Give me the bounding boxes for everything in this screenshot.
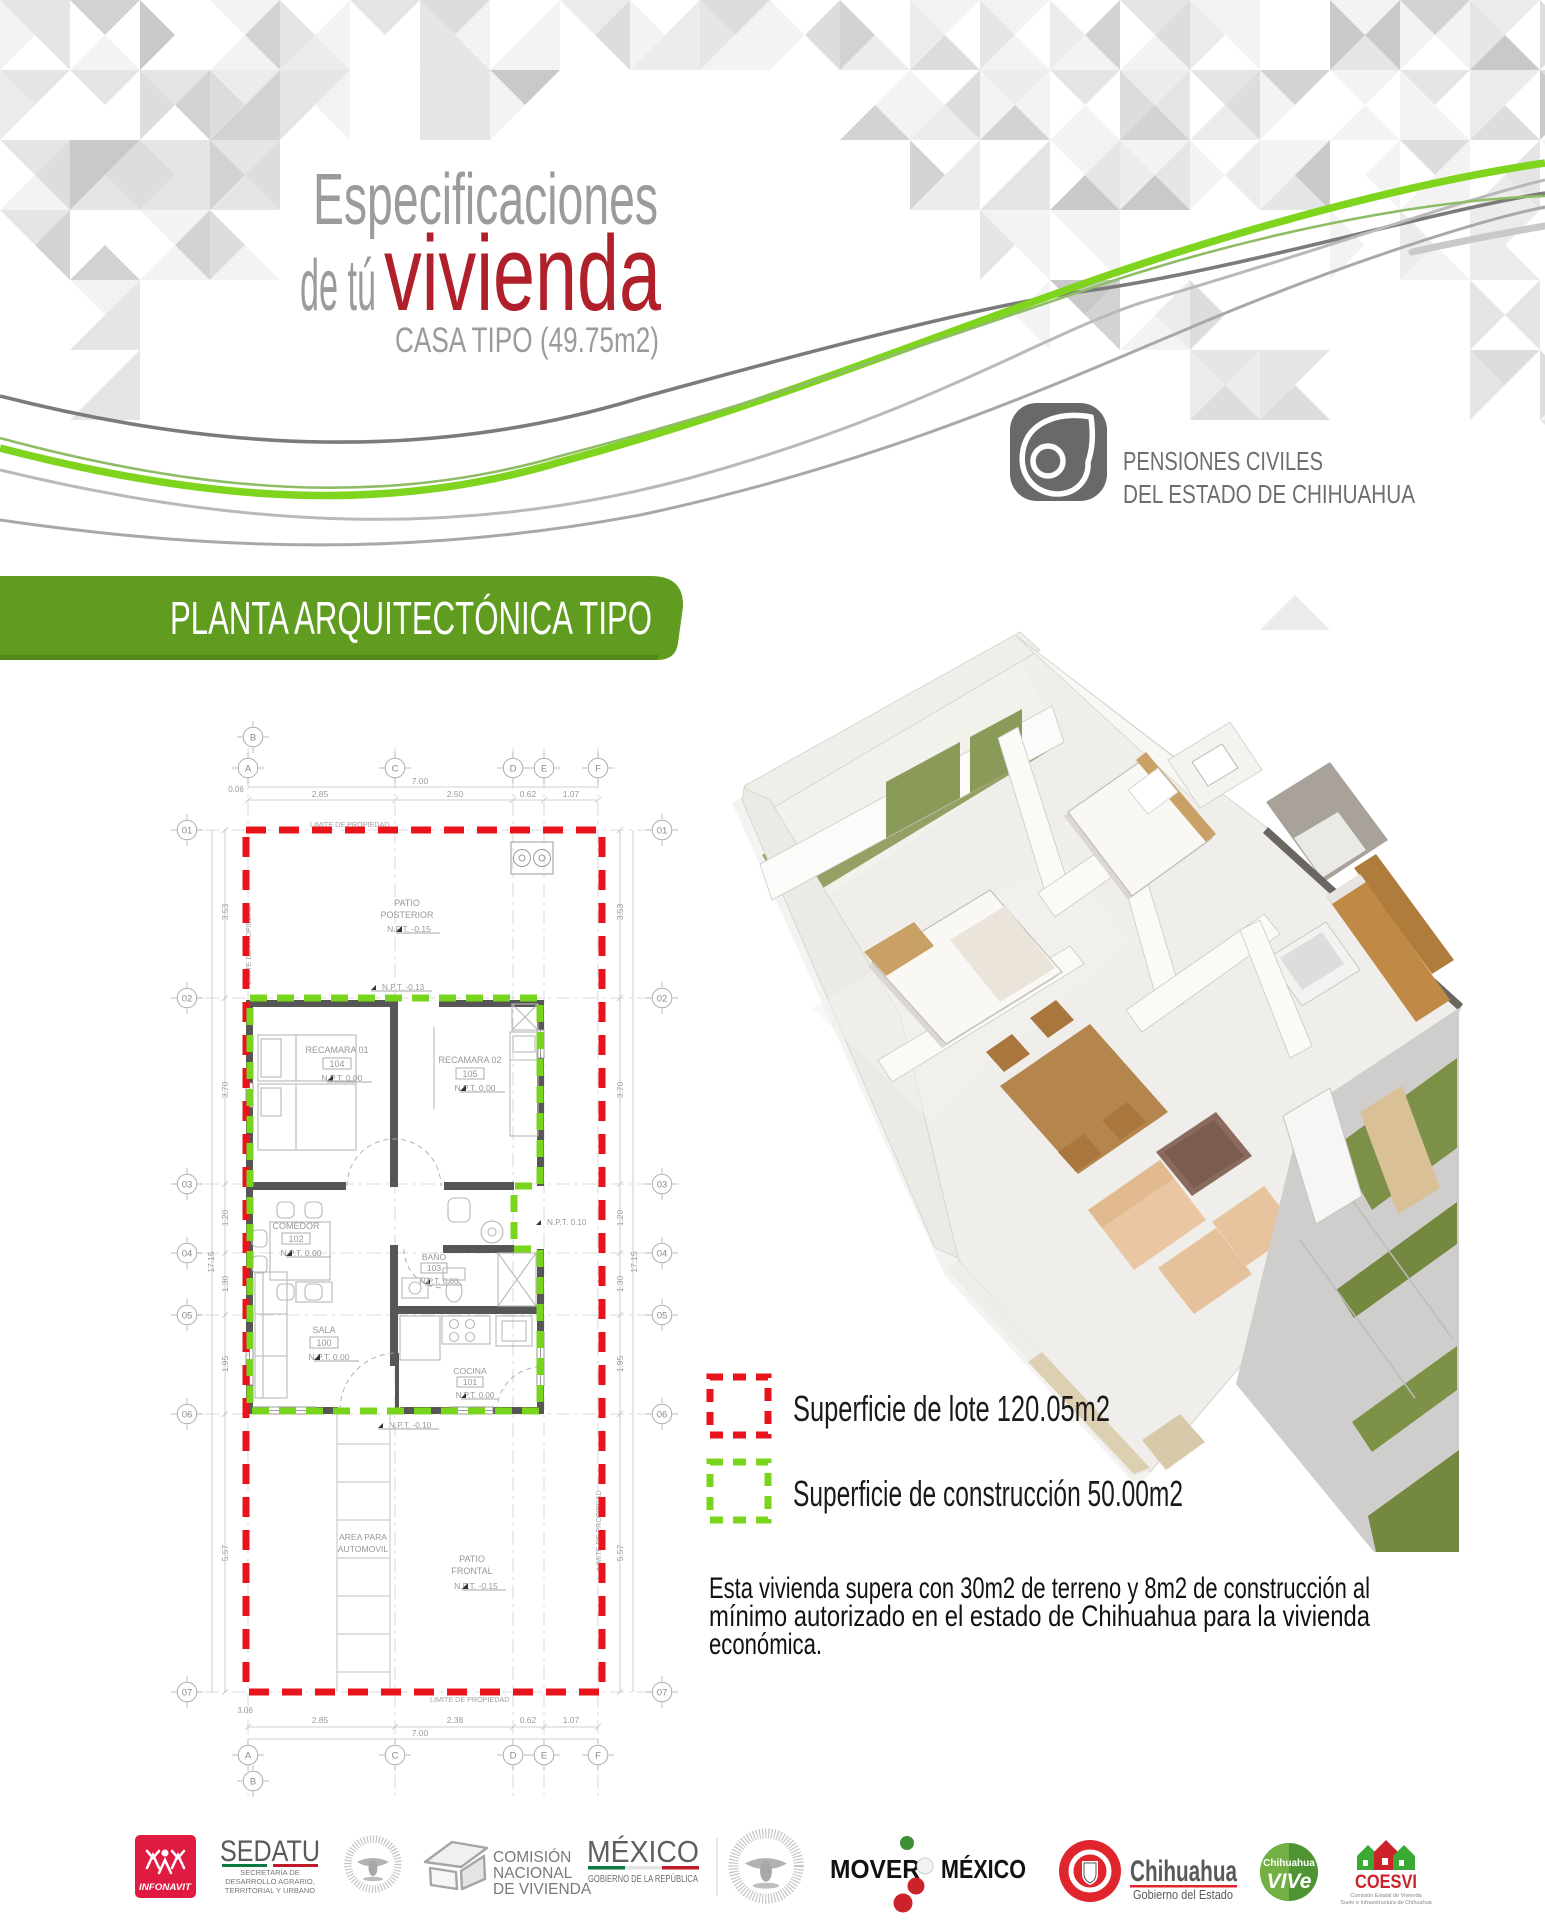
svg-text:5.57: 5.57	[615, 1544, 625, 1561]
svg-text:17.15: 17.15	[629, 1251, 639, 1273]
svg-text:COMISIÓN: COMISIÓN	[493, 1849, 571, 1866]
svg-text:A: A	[245, 764, 252, 775]
svg-text:Superficie de lote 120.05m2: Superficie de lote 120.05m2	[793, 1388, 1110, 1429]
svg-text:AREA PARA: AREA PARA	[339, 1532, 387, 1542]
svg-text:CASA TIPO (49.75m2): CASA TIPO (49.75m2)	[395, 321, 659, 360]
svg-text:D: D	[510, 1751, 517, 1762]
svg-text:PATIO: PATIO	[394, 898, 420, 908]
svg-text:A: A	[245, 1751, 252, 1762]
svg-text:POSTERIOR: POSTERIOR	[380, 910, 434, 920]
svg-text:07: 07	[182, 1688, 193, 1699]
svg-text:COCINA: COCINA	[453, 1366, 487, 1376]
svg-text:0.06: 0.06	[228, 785, 244, 794]
svg-text:BAÑO: BAÑO	[422, 1252, 447, 1262]
svg-text:F: F	[595, 764, 601, 775]
svg-text:3.70: 3.70	[220, 1081, 230, 1098]
svg-text:0.62: 0.62	[520, 1715, 537, 1725]
svg-text:PLANTA ARQUITECTÓNICA TIPO: PLANTA ARQUITECTÓNICA TIPO	[170, 592, 652, 644]
svg-text:GOBIERNO DE LA REPÚBLICA: GOBIERNO DE LA REPÚBLICA	[588, 1872, 698, 1885]
svg-text:3.70: 3.70	[615, 1081, 625, 1098]
svg-text:D: D	[510, 764, 517, 775]
svg-text:C: C	[392, 1751, 399, 1762]
svg-text:MÉXICO: MÉXICO	[941, 1854, 1026, 1884]
svg-text:2.85: 2.85	[312, 1715, 329, 1725]
svg-text:03: 03	[657, 1180, 668, 1191]
svg-text:105: 105	[462, 1069, 477, 1079]
svg-text:N.P.T. -0.15: N.P.T. -0.15	[454, 1581, 498, 1591]
svg-text:2.50: 2.50	[447, 789, 464, 799]
svg-text:Chihuahua: Chihuahua	[1263, 1858, 1315, 1869]
svg-text:económica.: económica.	[709, 1628, 822, 1661]
svg-text:06: 06	[657, 1410, 668, 1421]
svg-text:Gobierno del Estado: Gobierno del Estado	[1133, 1887, 1233, 1902]
svg-text:07: 07	[657, 1688, 668, 1699]
svg-text:Suelo e Infraestructura de Chi: Suelo e Infraestructura de Chihuahua	[1340, 1900, 1432, 1906]
svg-text:LIMITE DE PROPIEDAD: LIMITE DE PROPIEDAD	[430, 1695, 509, 1704]
svg-text:RECAMARA 02: RECAMARA 02	[438, 1055, 501, 1065]
svg-text:103: 103	[427, 1263, 442, 1273]
svg-text:NACIONAL: NACIONAL	[493, 1865, 573, 1882]
svg-text:DE VIVIENDA: DE VIVIENDA	[493, 1881, 592, 1898]
svg-text:B: B	[250, 1777, 256, 1788]
svg-text:2.38: 2.38	[447, 1715, 464, 1725]
svg-text:Comisión Estatal de Vivienda: Comisión Estatal de Vivienda	[1350, 1893, 1422, 1899]
svg-text:3.53: 3.53	[615, 903, 625, 920]
svg-text:C: C	[392, 764, 399, 775]
svg-text:de tú: de tú	[300, 246, 376, 326]
svg-text:N.P.T. 0.10: N.P.T. 0.10	[547, 1218, 587, 1227]
svg-text:3.06: 3.06	[237, 1706, 253, 1715]
svg-text:AUTOMOVIL: AUTOMOVIL	[338, 1544, 389, 1554]
svg-text:PATIO: PATIO	[459, 1554, 485, 1564]
svg-text:04: 04	[182, 1249, 193, 1260]
svg-text:1.95: 1.95	[220, 1355, 230, 1372]
svg-text:1.07: 1.07	[563, 1715, 580, 1725]
svg-text:F: F	[595, 1751, 601, 1762]
svg-text:INFONAVIT: INFONAVIT	[139, 1882, 192, 1893]
svg-text:PENSIONES CIVILES: PENSIONES CIVILES	[1123, 446, 1323, 476]
svg-text:Superficie de construcción 50.: Superficie de construcción 50.00m2	[793, 1473, 1183, 1514]
svg-text:05: 05	[657, 1311, 668, 1322]
svg-text:1.20: 1.20	[615, 1209, 625, 1226]
svg-text:SEDATU: SEDATU	[220, 1835, 320, 1868]
svg-text:E: E	[541, 764, 547, 775]
svg-text:7.00: 7.00	[412, 1728, 429, 1738]
svg-text:1.07: 1.07	[563, 789, 580, 799]
svg-text:N.P.T. -0.15: N.P.T. -0.15	[387, 924, 431, 934]
svg-text:0.62: 0.62	[520, 789, 537, 799]
svg-text:1.30: 1.30	[615, 1275, 625, 1292]
svg-text:1.30: 1.30	[220, 1275, 230, 1292]
svg-text:104: 104	[329, 1059, 344, 1069]
svg-text:MOVER: MOVER	[830, 1854, 920, 1884]
svg-text:1.20: 1.20	[220, 1209, 230, 1226]
svg-text:100: 100	[316, 1338, 331, 1348]
svg-text:RECAMARA 01: RECAMARA 01	[305, 1045, 368, 1055]
svg-text:FRONTAL: FRONTAL	[451, 1566, 492, 1576]
svg-text:Chihuahua: Chihuahua	[1130, 1855, 1237, 1888]
svg-text:01: 01	[182, 826, 193, 837]
svg-text:1.95: 1.95	[615, 1355, 625, 1372]
svg-text:VIVe: VIVe	[1267, 1870, 1312, 1893]
svg-text:TERRITORIAL Y URBANO: TERRITORIAL Y URBANO	[225, 1886, 315, 1895]
svg-text:03: 03	[182, 1180, 193, 1191]
svg-text:2.85: 2.85	[312, 789, 329, 799]
svg-text:01: 01	[657, 826, 668, 837]
svg-text:17.15: 17.15	[206, 1251, 216, 1273]
svg-text:101: 101	[463, 1377, 478, 1387]
svg-text:DEL ESTADO DE CHIHUAHUA: DEL ESTADO DE CHIHUAHUA	[1123, 479, 1416, 509]
svg-text:3.53: 3.53	[220, 903, 230, 920]
svg-text:06: 06	[182, 1410, 193, 1421]
svg-text:SECRETARÍA DE: SECRETARÍA DE	[240, 1868, 299, 1877]
svg-text:N.P.T. 0.00: N.P.T. 0.00	[309, 1352, 350, 1362]
svg-text:SALA: SALA	[312, 1325, 335, 1335]
svg-text:05: 05	[182, 1311, 193, 1322]
svg-text:B: B	[250, 733, 256, 744]
svg-text:COESVI: COESVI	[1355, 1872, 1417, 1893]
svg-text:7.00: 7.00	[412, 776, 429, 786]
svg-text:vivienda: vivienda	[384, 213, 661, 333]
svg-text:5.57: 5.57	[220, 1544, 230, 1561]
svg-text:MÉXICO: MÉXICO	[587, 1834, 699, 1869]
svg-text:102: 102	[288, 1234, 303, 1244]
svg-text:02: 02	[182, 994, 193, 1005]
svg-text:04: 04	[657, 1249, 668, 1260]
svg-text:DESARROLLO AGRARIO,: DESARROLLO AGRARIO,	[225, 1877, 315, 1886]
svg-text:E: E	[541, 1751, 547, 1762]
svg-text:02: 02	[657, 994, 668, 1005]
svg-text:N.P.T. 0.00: N.P.T. 0.00	[281, 1248, 322, 1258]
svg-text:N.P.T. 0.00: N.P.T. 0.00	[455, 1083, 496, 1093]
